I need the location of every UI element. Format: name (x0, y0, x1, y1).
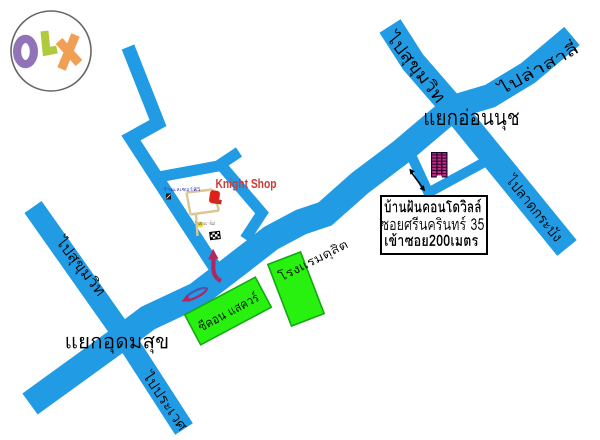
svg-text:Knight Shop: Knight Shop (216, 176, 277, 191)
